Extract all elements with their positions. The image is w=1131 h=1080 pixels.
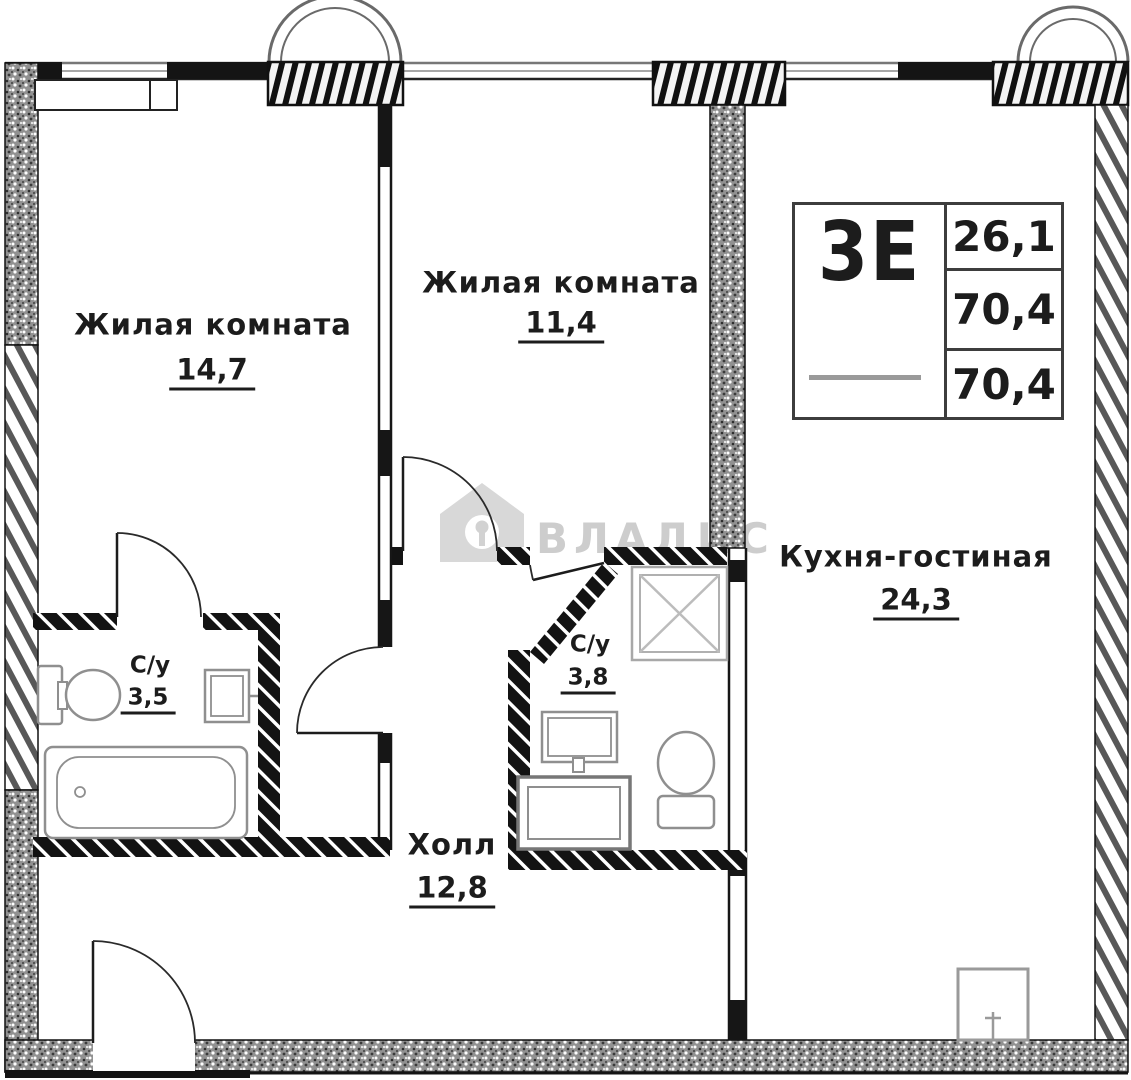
window-ledge <box>35 80 177 110</box>
room1-name: Жилая комната <box>74 311 352 340</box>
floor-plan-page: ВЛАДИС <box>0 0 1131 1080</box>
room2-area: 11,4 <box>518 309 604 338</box>
vent-block-1 <box>268 62 403 105</box>
bathroom1-area: 3,5 <box>121 687 176 710</box>
vent-block-3 <box>993 62 1128 105</box>
unit-area-row1: 26,1 <box>947 205 1061 271</box>
kitchen-area: 24,3 <box>873 586 959 615</box>
bathroom2-name: С/у <box>570 634 610 657</box>
unit-info-table: 3Е 26,1 70,4 70,4 <box>792 202 1064 420</box>
hall-area: 12,8 <box>409 874 495 903</box>
left-wall-upper <box>5 63 38 345</box>
hall-name: Холл <box>408 831 497 860</box>
washing-machine <box>518 777 630 849</box>
unit-area-row2: 70,4 <box>947 271 1061 352</box>
bathtub <box>45 747 247 838</box>
bathroom2-area: 3,8 <box>561 667 616 690</box>
kitchen-name: Кухня-гостиная <box>779 543 1053 572</box>
bathroom1-name: С/у <box>130 655 170 678</box>
unit-type-label: 3Е <box>804 205 935 300</box>
unit-areas-column: 26,1 70,4 70,4 <box>947 205 1061 417</box>
toilet-bathroom1 <box>38 666 120 724</box>
left-wall-middle <box>5 345 38 790</box>
entrance-opening <box>93 1036 195 1071</box>
unit-type-underline <box>809 375 921 380</box>
room1-area: 14,7 <box>169 356 255 385</box>
unit-type-cell: 3Е <box>795 205 947 417</box>
shower <box>632 567 727 660</box>
kitchen-sink-unit <box>958 969 1028 1040</box>
vent-block-2 <box>653 62 785 105</box>
wall-room2-kitchen <box>710 105 745 548</box>
right-wall <box>1095 105 1128 1040</box>
sink-bathroom2 <box>542 712 617 772</box>
toilet-bathroom2 <box>658 732 714 828</box>
left-wall-lower <box>5 790 38 1072</box>
sink-bathroom1 <box>205 670 258 722</box>
room2-name: Жилая комната <box>422 269 700 298</box>
unit-area-row3: 70,4 <box>947 351 1061 417</box>
